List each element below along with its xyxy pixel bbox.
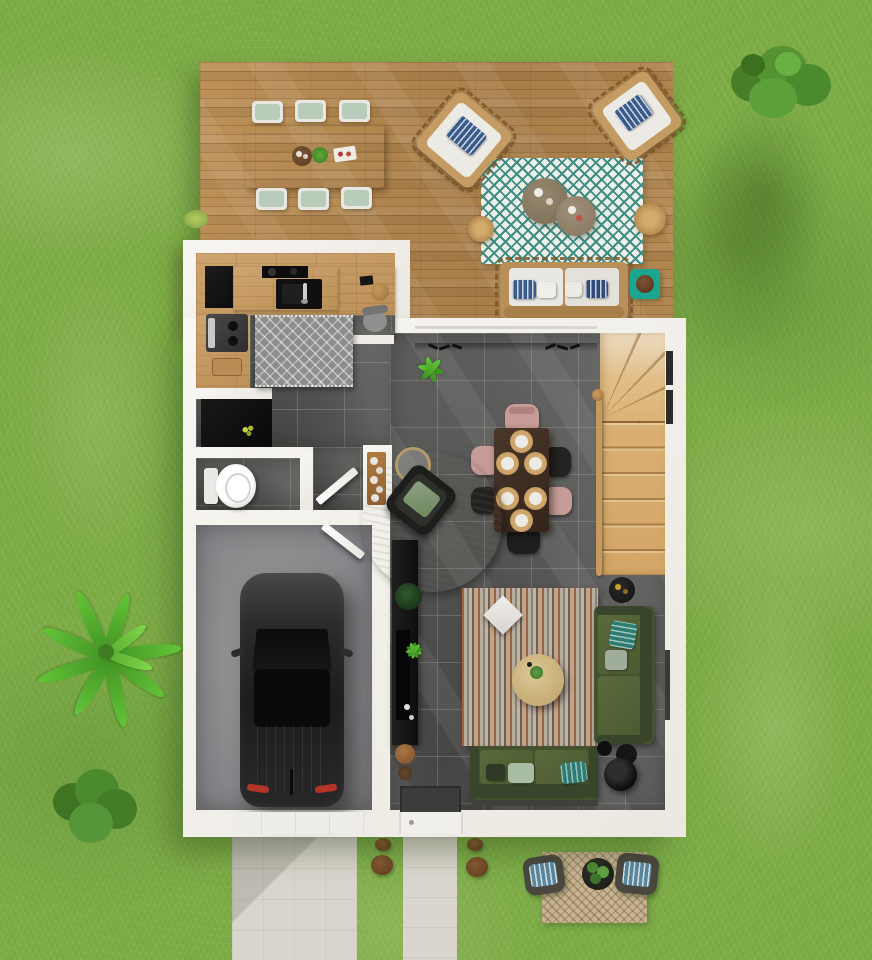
driveway [232, 837, 357, 960]
toilet [204, 464, 260, 508]
lawn-light-patch [10, 250, 180, 580]
terrace-chair [252, 101, 283, 123]
patio-door-frame [472, 800, 598, 806]
closet-flower [239, 423, 257, 438]
stairs-flight [600, 421, 665, 575]
placemat [524, 487, 547, 510]
outdoor-sofa-pillow [537, 282, 556, 298]
toilet-bowl [216, 464, 256, 508]
terrace-side-table [630, 269, 660, 299]
wood-stool [395, 744, 415, 764]
kitchen-sink [276, 279, 322, 309]
dining-chair-bottom [507, 531, 540, 554]
patio-chair-right [614, 852, 660, 896]
front-walkway [403, 837, 457, 960]
terrace-chair [256, 188, 287, 210]
front-door [399, 812, 463, 834]
car-windshield [252, 629, 332, 671]
terrace-coffee-table [556, 196, 596, 236]
sideboard-decor-dot [404, 704, 410, 710]
kitchen-hob [262, 266, 308, 278]
shrub-top-right [723, 40, 838, 128]
palm-left [28, 572, 186, 742]
rattan-pouf [634, 203, 666, 235]
placemat [510, 509, 533, 532]
desk-stool [371, 283, 389, 301]
outdoor-table-tray [292, 146, 312, 166]
sofa-pillow-teal [560, 761, 588, 785]
cutting-board [212, 358, 242, 376]
garage-door-exterior [228, 812, 364, 834]
sideboard-plant-dark [395, 583, 422, 610]
sofa-back [640, 608, 652, 742]
stepping-stone [467, 838, 483, 851]
grass-tuft [184, 210, 208, 228]
sofa-pillow-dark [486, 764, 505, 781]
kitchen-rug [255, 315, 353, 387]
terrace-chair [339, 100, 370, 122]
doormat [400, 786, 461, 814]
sliding-door-frame [415, 326, 597, 329]
patio-chair-cushion [622, 861, 652, 888]
sofa-pillow-sage [605, 650, 627, 670]
terrace-chair [341, 187, 372, 209]
terrace-chair [298, 188, 329, 210]
outdoor-sofa-pillow [512, 280, 536, 299]
desk-chair [363, 306, 387, 332]
stair-window [666, 390, 673, 424]
outdoor-table-plant [312, 147, 328, 163]
sofa-back [476, 784, 592, 798]
sideboard-plant-fern [394, 638, 422, 664]
placemat [524, 452, 547, 475]
stair-window [666, 351, 673, 385]
rattan-pouf [468, 216, 494, 242]
floor-lamp [597, 738, 642, 794]
stepping-stone [466, 857, 488, 877]
living-coffee-table [512, 654, 564, 706]
indoor-plant [398, 348, 444, 392]
stairs-newel-post [592, 389, 604, 401]
placemat [510, 430, 533, 453]
dining-chair-right-low [548, 487, 572, 515]
car-antenna [290, 769, 293, 795]
desk-laptop [360, 275, 374, 285]
closet-top-wall [196, 388, 272, 399]
sofa-right [594, 606, 654, 744]
sofa-pillow-sage [508, 763, 534, 783]
stairs-side-table [609, 577, 635, 603]
outdoor-sofa-pillow [585, 280, 608, 298]
sofa-bottom [470, 746, 598, 800]
dining-chair-right-mid [548, 447, 571, 477]
car-roof [254, 669, 330, 727]
stepping-stone [375, 838, 391, 851]
outdoor-sofa-back [504, 306, 624, 318]
stepping-stone [371, 855, 393, 875]
side-table-tray [636, 275, 654, 293]
staircase [600, 333, 665, 575]
stairs-handrail [596, 396, 602, 576]
patio-chair-cushion [528, 861, 558, 888]
car [240, 573, 344, 807]
outdoor-sofa [500, 262, 628, 320]
sofa-armrest [596, 606, 646, 615]
outdoor-sofa-pillow [565, 282, 582, 297]
desk-side-panel [352, 335, 394, 344]
living-window-frame [665, 650, 670, 720]
sideboard-decor-dot [409, 715, 414, 720]
sofa-pillow-teal [608, 620, 638, 650]
floor-plan-scene [0, 0, 872, 960]
wall-hooks [545, 343, 582, 357]
placemat [496, 452, 519, 475]
kitchen-tall-cabinet [205, 266, 233, 308]
terrace-chair [295, 100, 326, 122]
lawn-light-patch [690, 560, 860, 890]
patio-planter [582, 858, 614, 890]
stairs-winder [600, 333, 665, 423]
shrub-bottom-left [47, 763, 143, 855]
patio-chair-left [522, 853, 567, 896]
dining-chair-top [505, 404, 539, 429]
coffee-machine [206, 314, 248, 352]
decor-bowl [398, 766, 412, 780]
wc-right-wall [300, 452, 313, 510]
closet-unit [201, 399, 272, 447]
